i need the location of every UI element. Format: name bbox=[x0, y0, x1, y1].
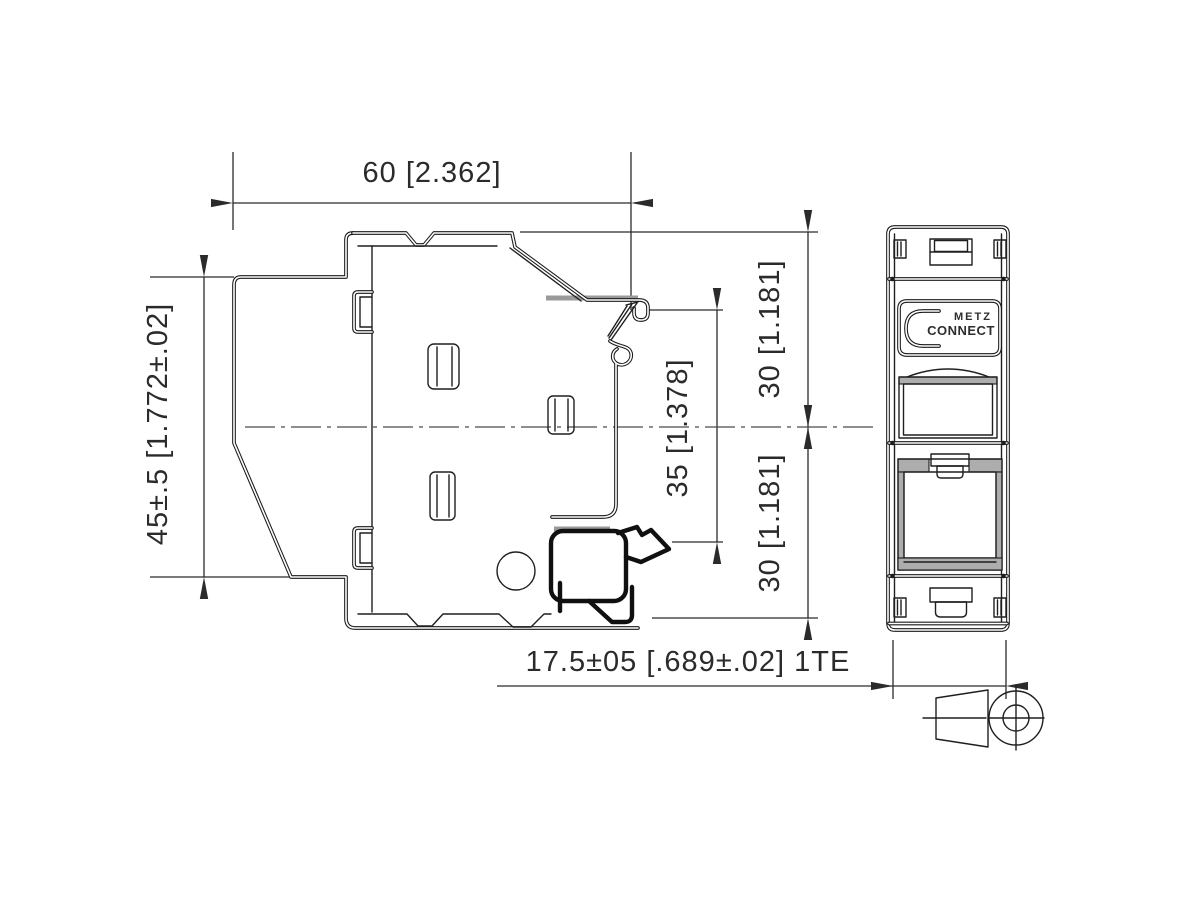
logo-line1: METZ bbox=[954, 311, 992, 323]
dim-35: 35 [1.378] bbox=[648, 310, 723, 542]
din-rail-hook bbox=[608, 302, 638, 340]
dim-width-60-label: 60 [2.362] bbox=[363, 157, 502, 189]
inner-bottom-edge bbox=[358, 614, 551, 627]
front-view: METZ CONNECT bbox=[888, 227, 1008, 630]
slot-middle-right bbox=[548, 396, 574, 434]
dim-35-label: 35 [1.378] bbox=[662, 359, 694, 498]
dim-30-lower-label: 30 [1.181] bbox=[754, 454, 786, 593]
dim-30-upper-label: 30 [1.181] bbox=[754, 260, 786, 399]
dim-module-width: 17.5±05 [.689±.02] 1TE bbox=[497, 640, 1006, 699]
drawing-canvas: 60 [2.362] 45±.5 [1.772±.02] 35 [1.378] … bbox=[0, 0, 1200, 900]
inner-chamfer-edge bbox=[510, 248, 581, 301]
slot-upper-left bbox=[428, 344, 459, 389]
slot-lower-left bbox=[430, 472, 455, 520]
side-view bbox=[234, 233, 669, 628]
technical-drawing: 60 [2.362] 45±.5 [1.772±.02] 35 [1.378] … bbox=[0, 0, 1200, 900]
latch bbox=[551, 527, 669, 622]
dim-height-45-label: 45±.5 [1.772±.02] bbox=[142, 303, 174, 545]
snap-tab-lower bbox=[354, 528, 372, 568]
dim-module-width-label: 17.5±05 [.689±.02] 1TE bbox=[526, 646, 851, 678]
latch-hole bbox=[497, 552, 535, 590]
snap-tab-upper bbox=[354, 292, 372, 332]
projection-symbol bbox=[923, 686, 1044, 750]
logo-line2: CONNECT bbox=[927, 323, 995, 338]
